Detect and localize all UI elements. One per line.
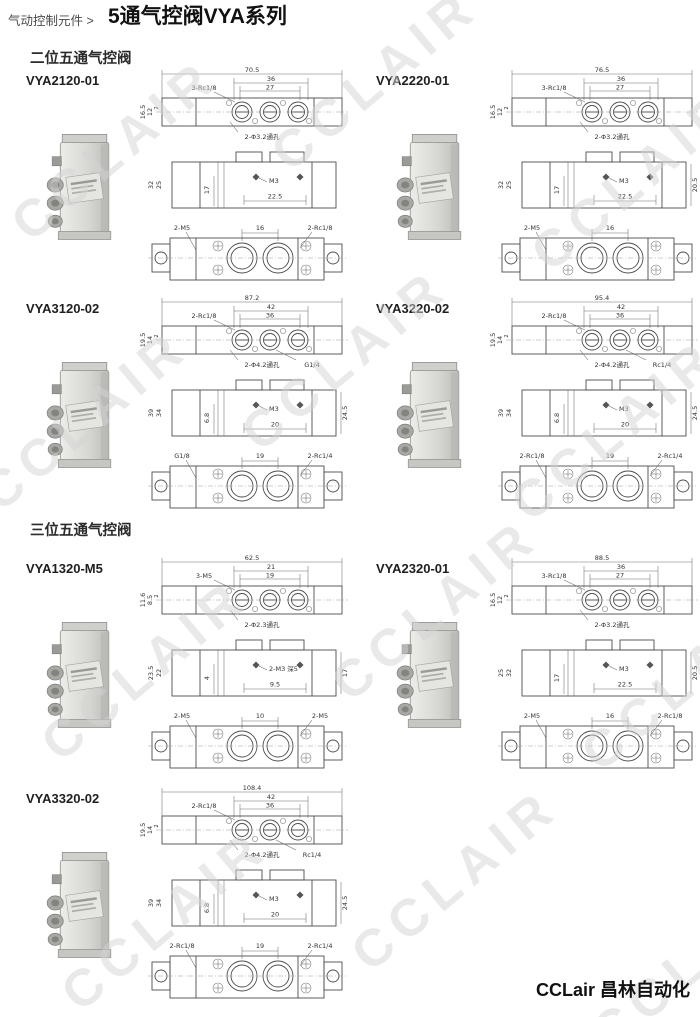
product-photo <box>34 132 130 244</box>
svg-text:2-Rc1/8: 2-Rc1/8 <box>307 224 332 232</box>
dim-top-height2: 14 <box>146 826 154 834</box>
bottom-view: 2-Rc1/8 19 2-Rc1/4 <box>148 942 346 998</box>
side-view: 23.5 22 4 2-M3 深5 9.5 17 <box>147 640 349 696</box>
product-code: VYA3120-02 <box>26 301 99 316</box>
dim-side-height1: 39 <box>147 409 155 417</box>
label-bottom-left-port: 2-Rc1/8 <box>169 942 194 950</box>
svg-text:24.5: 24.5 <box>691 406 699 420</box>
svg-text:24.5: 24.5 <box>341 896 349 910</box>
dim-side-inner: 17 <box>553 186 561 194</box>
dim-side-height1: 23.5 <box>147 666 155 680</box>
breadcrumb[interactable]: 气动控制元件 > <box>8 10 94 29</box>
dim-top-pitch-inner: 19 <box>266 572 274 580</box>
dim-bottom-pitch: 16 <box>606 224 614 232</box>
svg-text:20.5: 20.5 <box>691 178 699 192</box>
dimension-drawing: 70.5 36 27 3-Rc1/8 <box>138 64 356 289</box>
dim-side-height2: 25 <box>155 181 163 189</box>
catalog-page: CCLAIR CCLAIR CCLAIR CCLAIR CCLAIR CCLAI… <box>0 0 700 1017</box>
bottom-view: 2-Rc1/8 19 2-Rc1/4 <box>498 452 696 508</box>
dim-top-height2: 12 <box>146 108 154 116</box>
dim-top-pitch-outer: 42 <box>267 793 275 801</box>
product-code: VYA3320-02 <box>26 791 99 806</box>
valve-block-vya3120: VYA3120-02 <box>18 292 363 520</box>
bottom-view: 2-M5 16 2-Rc1/8 <box>498 712 696 768</box>
product-photo <box>384 132 480 244</box>
label-side-thread: M3 <box>619 405 629 413</box>
dim-bottom-pitch: 16 <box>606 712 614 720</box>
dim-side-height2: 34 <box>505 409 513 417</box>
dim-side-pitch: 22.5 <box>268 193 282 201</box>
watermark-text: CCLAIR <box>340 777 570 984</box>
svg-text:2-Rc1/4: 2-Rc1/4 <box>307 942 332 950</box>
label-top-thread: 3-Rc1/8 <box>191 84 216 92</box>
product-photo <box>384 360 480 472</box>
label-center-port: Rc1/4 <box>626 350 671 369</box>
svg-text:2-Rc1/4: 2-Rc1/4 <box>657 452 682 460</box>
page-title: 5通气控阀VYA系列 <box>108 0 287 30</box>
dim-side-height1: 39 <box>147 899 155 907</box>
top-view: 95.4 42 36 2-Rc1/8 <box>489 294 698 369</box>
dim-side-pitch: 22.5 <box>618 193 632 201</box>
dim-top-pitch-outer: 36 <box>617 563 625 571</box>
dim-side-height1: 32 <box>147 181 155 189</box>
svg-text:2-Rc1/8: 2-Rc1/8 <box>657 712 682 720</box>
dimension-drawing: 76.5 36 27 3-Rc1/8 <box>488 64 700 289</box>
dim-side-right: 24.5 <box>341 882 349 924</box>
dim-side-inner: 17 <box>203 186 211 194</box>
dim-side-inner: 6.8 <box>203 903 211 913</box>
label-side-thread: 2-M3 深5 <box>269 664 298 673</box>
product-code: VYA1320-M5 <box>26 561 103 576</box>
label-bottom-left-port: 2-Rc1/8 <box>519 452 544 460</box>
dim-side-pitch: 20 <box>271 911 279 919</box>
dim-top-pitch-outer: 42 <box>267 303 275 311</box>
svg-text:24.5: 24.5 <box>341 406 349 420</box>
top-view: 76.5 36 27 3-Rc1/8 <box>489 66 698 141</box>
valve-block-vya1320: VYA1320-M5 <box>18 552 363 780</box>
dim-top-height3: 2 <box>154 106 160 109</box>
dim-top-pitch-outer: 42 <box>617 303 625 311</box>
label-through-hole: 2-Φ4.2通孔 <box>245 360 280 369</box>
label-top-thread: 3-Rc1/8 <box>541 84 566 92</box>
top-view: 88.5 36 27 3-Rc1/8 <box>489 554 698 629</box>
dim-side-right: 24.5 <box>341 392 349 434</box>
bottom-view: 2-M5 16 <box>498 224 696 280</box>
dim-top-height3: 2 <box>154 594 160 597</box>
label-side-thread: M3 <box>619 665 629 673</box>
brand-footer: CCLair 昌林自动化 <box>470 976 690 1002</box>
top-view: 108.4 42 36 2-Rc1/8 <box>139 784 348 859</box>
svg-text:17: 17 <box>341 669 349 677</box>
dimension-drawing: 88.5 36 27 3-Rc1/8 <box>488 552 700 777</box>
dim-top-height2: 12 <box>496 596 504 604</box>
side-view: 32 25 17 M3 22.5 <box>147 152 336 208</box>
dim-bottom-pitch: 19 <box>606 452 614 460</box>
dim-top-pitch-inner: 36 <box>266 312 274 320</box>
dim-top-pitch-outer: 21 <box>267 563 275 571</box>
dim-side-height1: 25 <box>497 669 505 677</box>
dim-side-pitch: 20 <box>271 421 279 429</box>
dim-top-total-width: 95.4 <box>595 294 609 302</box>
label-side-thread: M3 <box>269 177 279 185</box>
dim-side-right: 17 <box>341 652 349 694</box>
dim-top-pitch-inner: 27 <box>616 572 624 580</box>
dim-bottom-pitch: 16 <box>256 224 264 232</box>
label-top-thread: 2-Rc1/8 <box>191 802 216 810</box>
dim-top-total-width: 62.5 <box>245 554 259 562</box>
dim-top-total-width: 87.2 <box>245 294 259 302</box>
valve-block-vya2220: VYA2220-01 <box>368 64 700 292</box>
svg-text:2-Rc1/4: 2-Rc1/4 <box>307 452 332 460</box>
dim-top-total-width: 88.5 <box>595 554 609 562</box>
label-bottom-left-port: 2-M5 <box>524 712 540 720</box>
label-top-thread: 2-Rc1/8 <box>191 312 216 320</box>
product-photo <box>34 620 130 732</box>
bottom-view: 2-M5 16 2-Rc1/8 <box>148 224 346 280</box>
dim-top-total-width: 108.4 <box>243 784 262 792</box>
label-side-thread: M3 <box>269 895 279 903</box>
label-through-hole: 2-Φ3.2通孔 <box>245 132 280 141</box>
svg-text:2-M5: 2-M5 <box>312 712 328 720</box>
dim-side-height2: 22 <box>155 669 163 677</box>
dim-top-height3: 2 <box>504 334 510 337</box>
dim-side-height2: 34 <box>155 409 163 417</box>
svg-text:Rc1/4: Rc1/4 <box>653 361 672 369</box>
side-view: 32 25 17 M3 22.5 20.5 <box>497 152 699 208</box>
dim-side-height2: 25 <box>505 181 513 189</box>
dim-top-height2: 12 <box>496 108 504 116</box>
dim-top-height3: 2 <box>504 106 510 109</box>
valve-block-vya3320: VYA3320-02 <box>18 782 363 1010</box>
dim-side-pitch: 22.5 <box>618 681 632 689</box>
valve-block-vya2120: VYA2120-01 <box>18 64 363 292</box>
product-code: VYA3220-02 <box>376 301 449 316</box>
dim-side-height2: 34 <box>155 899 163 907</box>
dim-top-height3: 2 <box>154 334 160 337</box>
label-through-hole: 2-Φ4.2通孔 <box>595 360 630 369</box>
label-center-port: Rc1/4 <box>276 840 321 859</box>
side-view: 39 34 6.8 M3 20 24.5 <box>497 380 699 436</box>
dim-bottom-pitch: 10 <box>256 712 264 720</box>
dim-side-right: 24.5 <box>691 392 699 434</box>
product-code: VYA2220-01 <box>376 73 449 88</box>
product-code: VYA2320-01 <box>376 561 449 576</box>
section-heading-two-position: 二位五通气控阀 <box>30 47 132 68</box>
side-view: 25 32 17 M3 22.5 20.5 <box>497 640 699 696</box>
valve-block-vya3220: VYA3220-02 <box>368 292 700 520</box>
dim-side-inner: 17 <box>553 674 561 682</box>
label-through-hole: 2-Φ4.2通孔 <box>245 850 280 859</box>
dim-top-total-width: 76.5 <box>595 66 609 74</box>
dimension-drawing: 108.4 42 36 2-Rc1/8 <box>138 782 356 1007</box>
label-center-port: G1/4 <box>276 350 320 369</box>
label-bottom-left-port: 2-M5 <box>174 712 190 720</box>
dimension-drawing: 62.5 21 19 3-M5 <box>138 552 356 777</box>
dim-top-pitch-inner: 27 <box>266 84 274 92</box>
dim-side-inner: 6.8 <box>203 413 211 423</box>
top-view: 62.5 21 19 3-M5 <box>139 554 348 629</box>
top-view: 87.2 42 36 2-Rc1/8 <box>139 294 348 369</box>
dim-top-pitch-outer: 36 <box>267 75 275 83</box>
product-photo <box>384 620 480 732</box>
label-bottom-left-port: 2-M5 <box>524 224 540 232</box>
dim-side-right: 20.5 <box>691 164 699 206</box>
dim-side-right: 20.5 <box>691 652 699 694</box>
label-bottom-left-port: 2-M5 <box>174 224 190 232</box>
label-side-thread: M3 <box>269 405 279 413</box>
label-through-hole: 2-Φ2.3通孔 <box>245 620 280 629</box>
label-through-hole: 2-Φ3.2通孔 <box>595 132 630 141</box>
svg-text:Rc1/4: Rc1/4 <box>303 851 322 859</box>
dim-top-height3: 2 <box>154 824 160 827</box>
dimension-drawing: 87.2 42 36 2-Rc1/8 <box>138 292 356 517</box>
section-heading-three-position: 三位五通气控阀 <box>30 519 132 540</box>
product-photo <box>34 360 130 472</box>
valve-block-vya2320: VYA2320-01 <box>368 552 700 780</box>
dim-bottom-pitch: 19 <box>256 942 264 950</box>
dim-top-height2: 8.5 <box>146 595 154 605</box>
dim-top-height2: 14 <box>146 336 154 344</box>
dim-side-height1: 39 <box>497 409 505 417</box>
side-view: 39 34 6.8 M3 20 24.5 <box>147 380 349 436</box>
dim-side-inner: 6.8 <box>553 413 561 423</box>
label-top-thread: 3-M5 <box>196 572 212 580</box>
label-top-thread: 3-Rc1/8 <box>541 572 566 580</box>
dim-top-height3: 2 <box>504 594 510 597</box>
dim-side-inner: 4 <box>203 676 211 680</box>
dim-top-pitch-inner: 36 <box>616 312 624 320</box>
svg-text:20.5: 20.5 <box>691 666 699 680</box>
dimension-drawing: 95.4 42 36 2-Rc1/8 <box>488 292 700 517</box>
dim-bottom-pitch: 19 <box>256 452 264 460</box>
product-photo <box>34 850 130 962</box>
product-code: VYA2120-01 <box>26 73 99 88</box>
dim-top-height2: 14 <box>496 336 504 344</box>
label-through-hole: 2-Φ3.2通孔 <box>595 620 630 629</box>
bottom-view: 2-M5 10 2-M5 <box>148 712 346 768</box>
dim-side-pitch: 20 <box>621 421 629 429</box>
dim-top-pitch-outer: 36 <box>617 75 625 83</box>
dim-top-total-width: 70.5 <box>245 66 259 74</box>
dim-side-height1: 32 <box>497 181 505 189</box>
top-view: 70.5 36 27 3-Rc1/8 <box>139 66 348 141</box>
label-top-thread: 2-Rc1/8 <box>541 312 566 320</box>
label-side-thread: M3 <box>619 177 629 185</box>
dim-side-pitch: 9.5 <box>270 681 280 689</box>
svg-text:G1/4: G1/4 <box>304 361 320 369</box>
label-bottom-left-port: G1/8 <box>174 452 190 460</box>
side-view: 39 34 6.8 M3 20 24.5 <box>147 870 349 926</box>
dim-top-pitch-inner: 36 <box>266 802 274 810</box>
dim-side-height2: 32 <box>505 669 513 677</box>
dim-top-pitch-inner: 27 <box>616 84 624 92</box>
bottom-view: G1/8 19 2-Rc1/4 <box>148 452 346 508</box>
